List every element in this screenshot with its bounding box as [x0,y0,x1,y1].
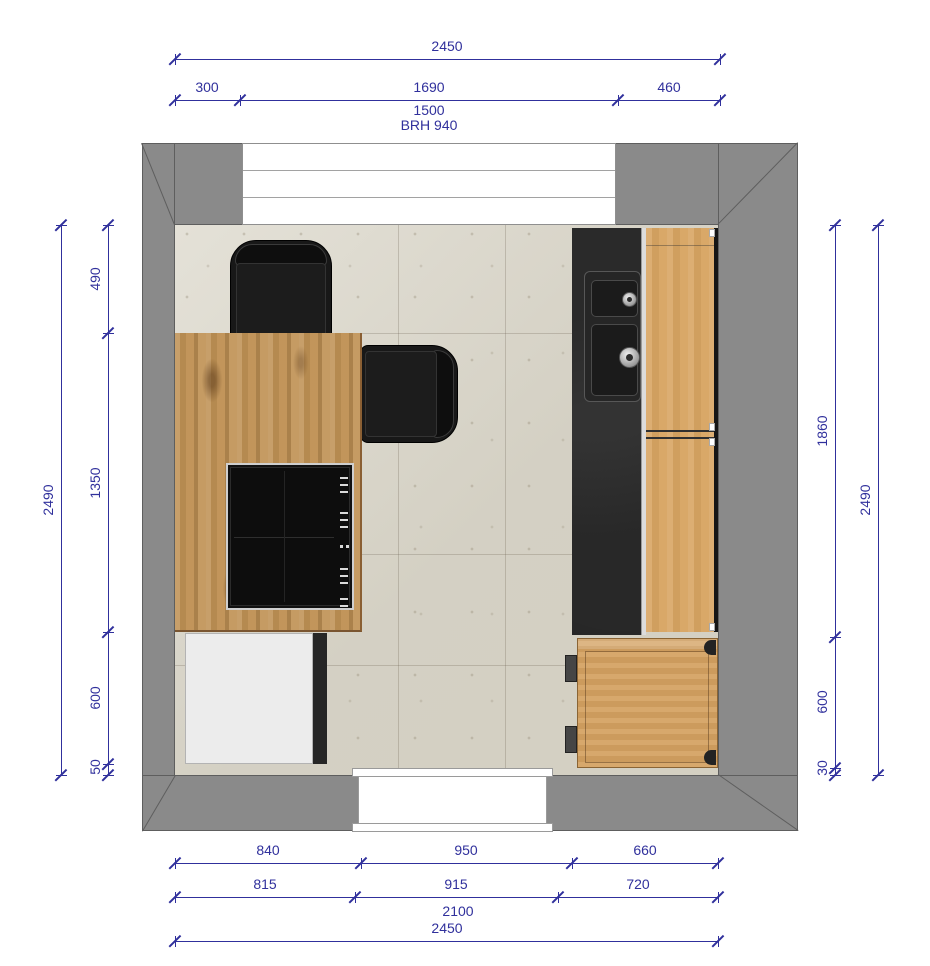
dimension-extension [175,892,176,903]
dim-line-right-overall [878,225,879,775]
dim-line-left-chain [108,225,109,775]
dimension-extension [718,858,719,869]
door-hinge [704,640,716,655]
dim-label-right-1860: 1860 [815,415,829,446]
hob-control-mark [340,575,348,577]
dimension-extension [830,225,841,226]
hob-control-mark [346,545,349,548]
dim-label-bottom-950: 950 [454,843,477,857]
dimension-extension [720,54,721,65]
dim-label-left-overall: 2490 [41,484,55,515]
cabinet-handle [565,726,577,753]
dimension-extension [718,936,719,947]
cabinet-handle [565,655,577,682]
window [242,143,616,225]
dim-label-top-300: 300 [195,80,218,94]
island-side-panel [313,633,327,764]
cabinet-seam [646,245,714,246]
floor-joint [398,225,399,775]
dim-label-left-50: 50 [88,759,102,775]
dim-label-bottom-2100: 2100 [442,904,473,918]
hob-control-mark [340,484,348,486]
induction-hob [226,463,354,610]
sink-drain [619,347,640,368]
window-frame-line [243,197,615,198]
hob-control-mark [340,568,348,570]
hob-zone-divider [284,471,285,602]
wall-left [142,143,175,831]
dim-line-top-chain [175,100,720,101]
hob-control-mark [340,545,343,548]
base-cabinet [577,638,718,768]
dim-label-top-460: 460 [657,80,680,94]
dim-label-bottom-720: 720 [626,877,649,891]
dim-line-right-chain [835,225,836,775]
cabinet-seam [646,430,714,432]
dimension-extension [56,225,67,226]
base-cabinet-door [585,651,709,763]
dimension-extension [175,54,176,65]
door-hinge [704,750,716,765]
dimension-extension [572,858,573,869]
dim-line-top-overall [175,59,720,60]
dimension-extension [175,858,176,869]
dimension-extension [830,775,841,776]
hob-control-mark [340,491,348,493]
dim-label-bottom-815: 815 [253,877,276,891]
dimension-extension [355,892,356,903]
dim-label-sill-height: BRH 940 [401,118,458,132]
dim-label-bottom-overall: 2450 [431,921,462,935]
dim-label-window-width: 1500 [413,103,444,117]
kitchen-floor-plan: 2450 300 1690 460 1500 BRH 940 2490 490 … [0,0,930,966]
dim-label-top-overall: 2450 [431,39,462,53]
sink-drain [622,292,637,307]
hob-control-mark [340,526,348,528]
dim-label-bottom-840: 840 [256,843,279,857]
dimension-extension [103,225,114,226]
dimension-extension [873,775,884,776]
dim-label-bottom-660: 660 [633,843,656,857]
window-frame-line [243,170,615,171]
chair-seat [236,263,326,338]
chair-right [360,345,458,443]
dimension-extension [558,892,559,903]
chair-seat [365,351,437,437]
wall-right [718,143,798,831]
dimension-extension [103,632,114,633]
dimension-extension [103,333,114,334]
dimension-extension [56,775,67,776]
dimension-extension [718,892,719,903]
white-base-cabinet [185,633,313,764]
hinge-mark [709,438,715,446]
hob-control-mark [340,477,348,479]
dim-label-bottom-915: 915 [444,877,467,891]
chair-top [230,240,332,343]
door-frame-sill [352,823,553,832]
dimension-extension [175,936,176,947]
dim-label-right-600: 600 [815,690,829,713]
hob-control-mark [340,582,348,584]
dim-line-left-overall [61,225,62,775]
hob-control-mark [340,512,348,514]
hob-control-mark [340,598,348,600]
dim-line-bottom-chain2 [175,897,718,898]
cabinet-seam [646,437,714,439]
door-opening [358,776,547,825]
dimension-extension [720,95,721,106]
hob-control-mark [340,605,348,607]
dimension-extension [873,225,884,226]
hinge-mark [709,229,715,237]
dim-label-right-30: 30 [815,760,829,776]
dim-label-top-1690: 1690 [413,80,444,94]
dim-label-left-490: 490 [88,267,102,290]
floor-joint [505,225,506,775]
dimension-extension [830,637,841,638]
dim-label-left-1350: 1350 [88,467,102,498]
dimension-extension [175,95,176,106]
dimension-extension [361,858,362,869]
dim-label-left-600: 600 [88,686,102,709]
dimension-extension [103,764,114,765]
dim-label-right-overall: 2490 [858,484,872,515]
dim-line-bottom-chain1 [175,863,718,864]
hob-control-mark [340,519,348,521]
dimension-extension [103,775,114,776]
hinge-mark [709,623,715,631]
hinge-mark [709,423,715,431]
dimension-extension [240,95,241,106]
dim-line-bottom-overall [175,941,718,942]
dimension-extension [618,95,619,106]
